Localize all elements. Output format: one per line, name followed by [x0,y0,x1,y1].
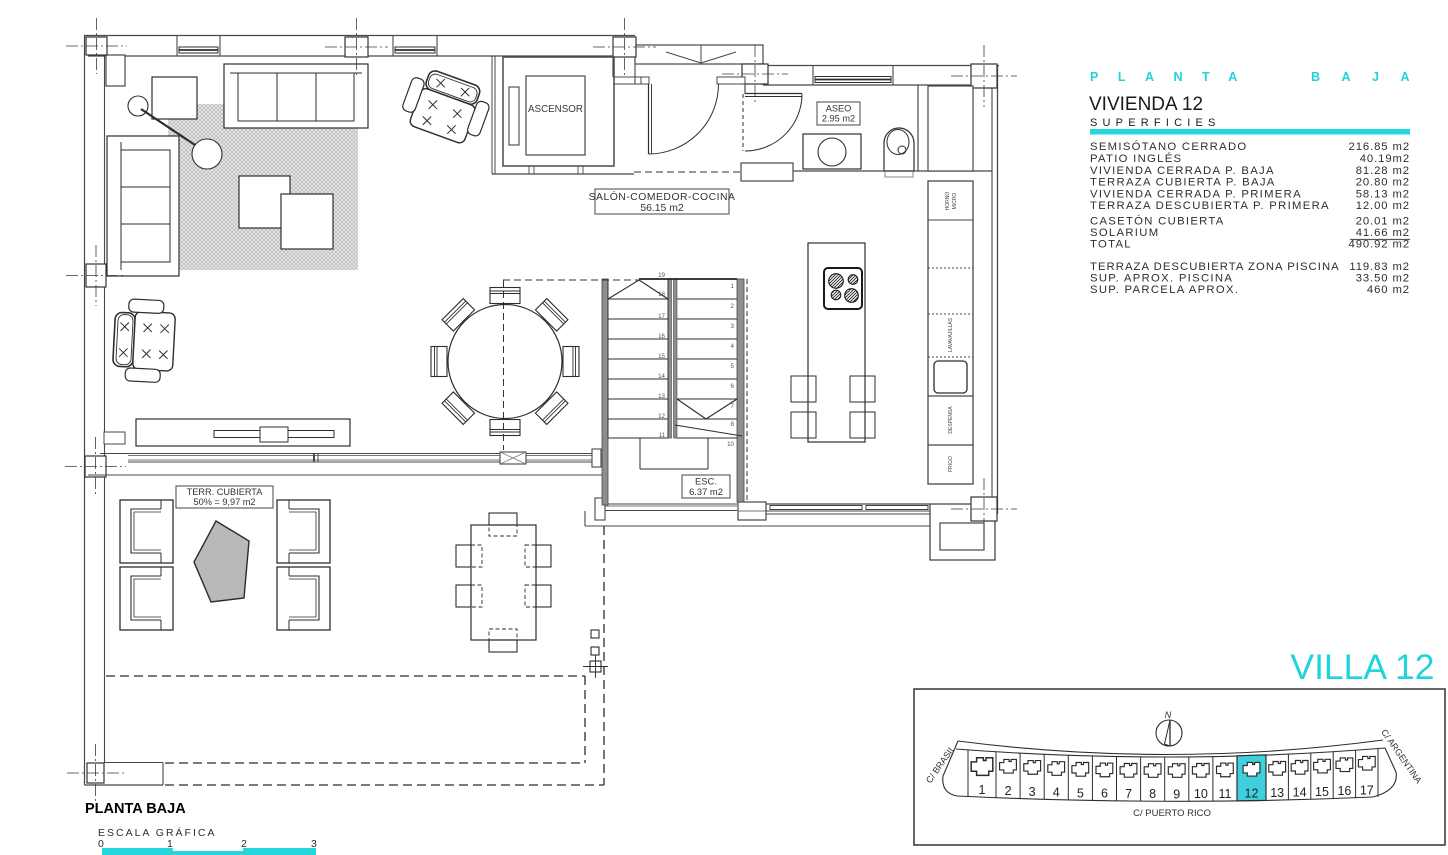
svg-text:LAVAVAJILLAS: LAVAVAJILLAS [948,317,954,352]
svg-text:3: 3 [1029,785,1036,799]
svg-text:6: 6 [1101,787,1108,801]
svg-text:SUP. PARCELA APROX.: SUP. PARCELA APROX. [1090,284,1239,296]
svg-text:TERRAZA DESCUBIERTA P. PRIMERA: TERRAZA DESCUBIERTA P. PRIMERA [1090,200,1330,212]
svg-text:ESC.: ESC. [695,476,717,487]
svg-text:5: 5 [1077,786,1084,800]
svg-text:216.85 m2: 216.85 m2 [1349,141,1410,153]
svg-text:4: 4 [1053,786,1060,800]
svg-text:13: 13 [1270,786,1284,800]
svg-text:SEMISÓTANO CERRADO: SEMISÓTANO CERRADO [1090,140,1248,153]
svg-text:PLANTA: PLANTA [1090,70,1257,84]
svg-text:ASCENSOR: ASCENSOR [528,104,583,115]
svg-text:15: 15 [1315,785,1329,799]
svg-text:MICRO: MICRO [952,193,958,210]
svg-text:13: 13 [658,393,665,400]
svg-text:BAJA: BAJA [1311,70,1431,84]
svg-text:VIVIENDA CERRADA P. BAJA: VIVIENDA CERRADA P. BAJA [1090,165,1275,177]
svg-text:12.00 m2: 12.00 m2 [1356,200,1410,212]
svg-text:12: 12 [658,413,665,420]
svg-text:7: 7 [1125,787,1132,801]
svg-text:TOTAL: TOTAL [1090,239,1132,251]
svg-text:15: 15 [658,353,665,360]
svg-text:17: 17 [658,313,665,320]
svg-text:119.83 m2: 119.83 m2 [1349,261,1410,273]
svg-text:50% = 9,97 m2: 50% = 9,97 m2 [193,497,255,507]
svg-text:6.37 m2: 6.37 m2 [689,486,723,497]
svg-text:14: 14 [658,373,665,380]
svg-text:2: 2 [731,303,735,310]
svg-text:33.50 m2: 33.50 m2 [1356,273,1410,285]
svg-text:3: 3 [731,323,735,330]
svg-text:19: 19 [658,272,665,279]
svg-text:8: 8 [731,421,735,428]
svg-text:490.92 m2: 490.92 m2 [1349,239,1410,251]
svg-text:12: 12 [1245,787,1259,801]
svg-text:PLANTA BAJA: PLANTA BAJA [85,801,186,817]
svg-text:9: 9 [1173,787,1180,801]
svg-text:40.19m2: 40.19m2 [1360,153,1410,165]
svg-text:41.66 m2: 41.66 m2 [1356,227,1410,239]
svg-text:58.13 m2: 58.13 m2 [1356,189,1410,201]
svg-text:SALÓN-COMEDOR-COCINA: SALÓN-COMEDOR-COCINA [589,190,736,203]
svg-text:11: 11 [1218,787,1231,801]
svg-text:2.95 m2: 2.95 m2 [822,114,855,124]
svg-text:2: 2 [1005,784,1012,798]
svg-text:16: 16 [1337,784,1351,798]
svg-text:20.01 m2: 20.01 m2 [1356,216,1410,228]
svg-text:ESCALA GRÁFICA: ESCALA GRÁFICA [98,826,216,839]
svg-text:460 m2: 460 m2 [1367,284,1410,296]
svg-text:TERRAZA DESCUBIERTA ZONA PISC: TERRAZA DESCUBIERTA ZONA PISCINA [1090,261,1340,273]
svg-text:SUPERFICIES: SUPERFICIES [1090,117,1221,129]
svg-text:8: 8 [1149,787,1156,801]
svg-text:C/ PUERTO RICO: C/ PUERTO RICO [1133,808,1211,819]
svg-text:VIVIENDA 12: VIVIENDA 12 [1089,94,1203,115]
svg-text:7: 7 [731,403,735,410]
svg-text:SOLARIUM: SOLARIUM [1090,227,1159,239]
svg-text:TERRAZA CUBIERTA P. BAJA: TERRAZA CUBIERTA P. BAJA [1090,177,1276,189]
svg-text:5: 5 [731,363,735,370]
svg-text:16: 16 [658,333,665,340]
svg-text:DESPENSA: DESPENSA [948,406,954,434]
svg-text:11: 11 [659,432,666,439]
svg-text:PATIO INGLÉS: PATIO INGLÉS [1090,152,1182,165]
svg-text:20.80 m2: 20.80 m2 [1356,177,1410,189]
svg-text:10: 10 [727,441,734,448]
svg-text:1: 1 [979,783,986,797]
svg-text:VILLA 12: VILLA 12 [1290,647,1434,687]
svg-text:4: 4 [731,343,735,350]
svg-text:6: 6 [731,383,735,390]
svg-text:17: 17 [1360,783,1374,797]
svg-text:TERR. CUBIERTA: TERR. CUBIERTA [187,487,264,497]
svg-text:SUP. APROX. PISCINA: SUP. APROX. PISCINA [1090,273,1233,285]
svg-text:CASETÓN CUBIERTA: CASETÓN CUBIERTA [1090,215,1225,228]
svg-text:1: 1 [731,283,735,290]
svg-text:ASEO: ASEO [826,104,852,114]
svg-text:N: N [1165,710,1172,720]
svg-text:14: 14 [1293,786,1307,800]
svg-text:10: 10 [1194,787,1208,801]
svg-text:HORNO: HORNO [945,192,951,211]
svg-text:VIVIENDA CERRADA P. PRIMERA: VIVIENDA CERRADA P. PRIMERA [1090,189,1302,201]
svg-text:56.15 m2: 56.15 m2 [640,203,684,214]
svg-text:FRIGO: FRIGO [948,456,954,472]
svg-text:81.28 m2: 81.28 m2 [1356,165,1410,177]
